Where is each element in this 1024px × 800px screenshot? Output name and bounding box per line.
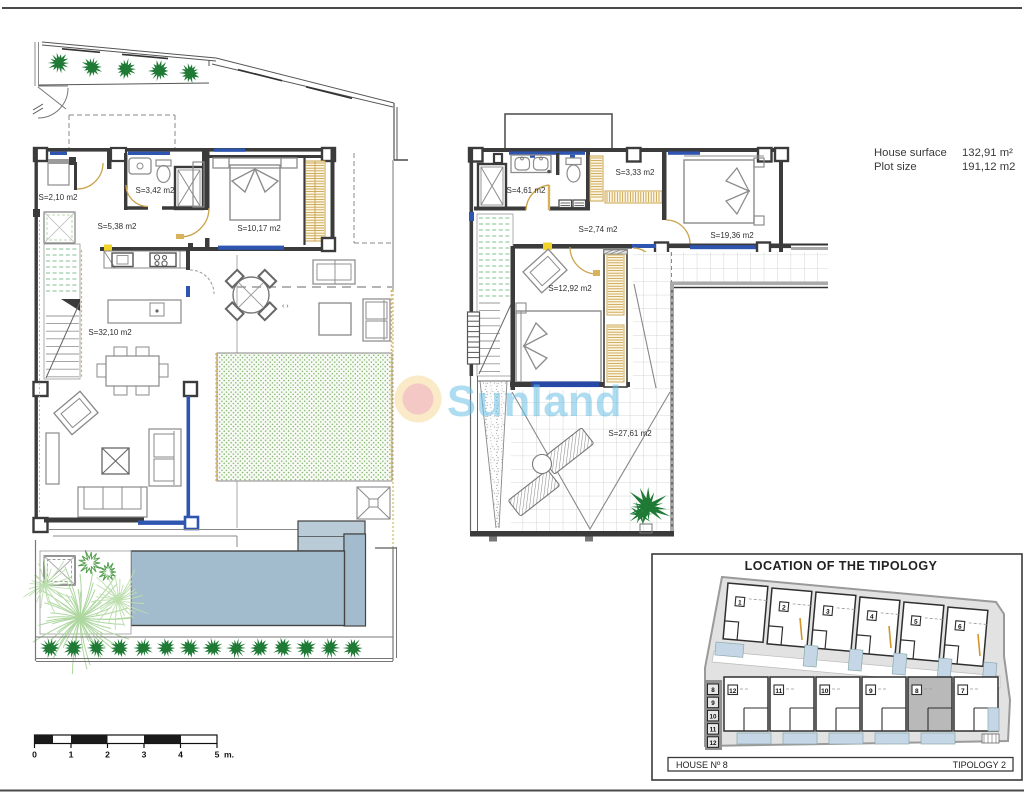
svg-text:12: 12: [709, 740, 717, 747]
svg-text:S=32,10 m2: S=32,10 m2: [88, 328, 132, 337]
svg-text:m.: m.: [224, 750, 234, 760]
svg-text:9: 9: [869, 688, 873, 695]
svg-text:9: 9: [711, 700, 715, 707]
svg-text:Sunland: Sunland: [447, 378, 622, 426]
svg-text:132,91 m²: 132,91 m²: [962, 147, 1013, 159]
svg-text:S=10,17 m2: S=10,17 m2: [237, 224, 281, 233]
svg-text:S=4,61 m2: S=4,61 m2: [507, 186, 546, 195]
svg-text:S=12,92 m2: S=12,92 m2: [548, 284, 592, 293]
svg-text:2: 2: [105, 750, 110, 760]
svg-text:LOCATION OF THE TIPOLOGY: LOCATION OF THE TIPOLOGY: [745, 559, 938, 573]
svg-text:‹ ›: ‹ ›: [282, 303, 289, 310]
svg-text:11: 11: [775, 688, 782, 695]
svg-text:8: 8: [711, 687, 715, 694]
svg-text:S=3,42 m2: S=3,42 m2: [136, 186, 175, 195]
svg-text:S=3,33 m2: S=3,33 m2: [616, 168, 655, 177]
svg-text:S=19,36 m2: S=19,36 m2: [710, 231, 754, 240]
svg-text:191,12 m2: 191,12 m2: [962, 161, 1015, 173]
svg-text:10: 10: [821, 688, 829, 695]
svg-text:S=27,61 m2: S=27,61 m2: [608, 429, 652, 438]
svg-text:11: 11: [710, 727, 717, 734]
svg-text:S=2,74 m2: S=2,74 m2: [579, 225, 618, 234]
svg-text:S=2,10 m2: S=2,10 m2: [39, 193, 78, 202]
svg-text:Plot size: Plot size: [874, 161, 917, 173]
svg-text:4: 4: [178, 750, 183, 760]
svg-text:10: 10: [709, 713, 717, 720]
svg-text:1: 1: [69, 750, 74, 760]
svg-text:8: 8: [915, 688, 919, 695]
svg-text:5: 5: [215, 750, 220, 760]
svg-text:House surface: House surface: [874, 147, 947, 159]
svg-text:HOUSE Nº 8: HOUSE Nº 8: [676, 760, 728, 770]
svg-text:S=5,38 m2: S=5,38 m2: [98, 222, 137, 231]
svg-text:TIPOLOGY 2: TIPOLOGY 2: [953, 760, 1006, 770]
svg-text:12: 12: [729, 688, 737, 695]
svg-text:7: 7: [961, 688, 965, 695]
svg-text:3: 3: [142, 750, 147, 760]
svg-text:0: 0: [32, 750, 37, 760]
